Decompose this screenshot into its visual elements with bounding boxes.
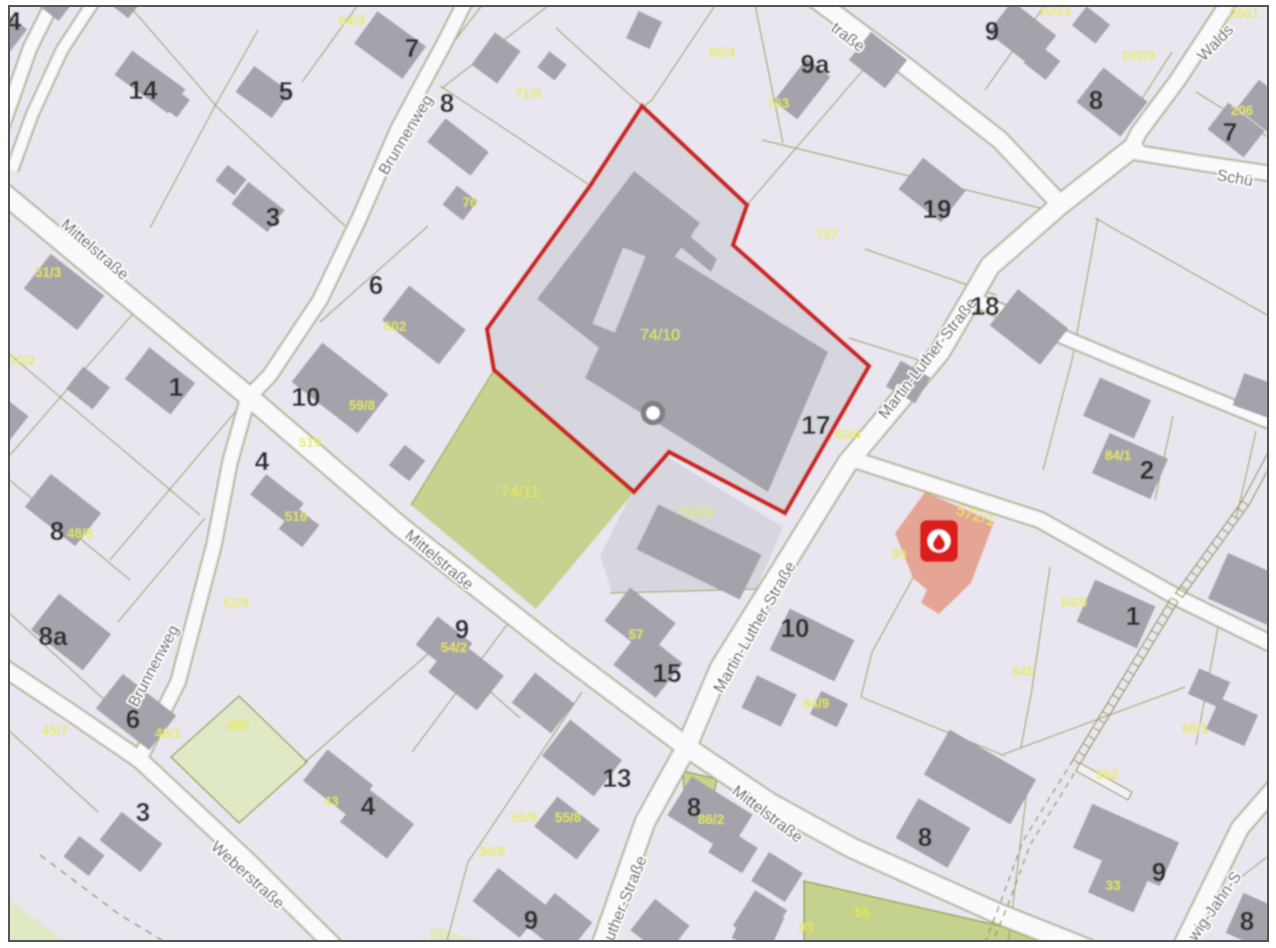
svg-text:5: 5 bbox=[279, 76, 293, 106]
svg-text:9: 9 bbox=[524, 905, 538, 935]
svg-text:3: 3 bbox=[266, 202, 280, 232]
svg-text:19: 19 bbox=[923, 194, 952, 224]
svg-text:206: 206 bbox=[1231, 103, 1254, 118]
svg-text:52/6: 52/6 bbox=[223, 595, 250, 610]
svg-text:74/11: 74/11 bbox=[501, 484, 540, 501]
svg-text:74/10: 74/10 bbox=[640, 327, 680, 344]
svg-text:552: 552 bbox=[1096, 767, 1119, 782]
svg-text:7: 7 bbox=[405, 33, 419, 63]
svg-text:9: 9 bbox=[1152, 857, 1166, 887]
svg-text:64/9: 64/9 bbox=[803, 696, 829, 711]
svg-text:4: 4 bbox=[361, 791, 376, 821]
svg-text:8: 8 bbox=[918, 822, 932, 852]
svg-text:96/4: 96/4 bbox=[709, 45, 736, 60]
svg-text:8: 8 bbox=[1089, 85, 1103, 115]
svg-text:84/9: 84/9 bbox=[1061, 595, 1087, 610]
svg-text:84/1: 84/1 bbox=[1105, 448, 1132, 463]
svg-text:757: 757 bbox=[816, 227, 839, 242]
svg-text:9: 9 bbox=[985, 16, 999, 46]
svg-text:55/8: 55/8 bbox=[555, 810, 582, 825]
svg-text:48/1: 48/1 bbox=[155, 726, 182, 741]
svg-text:71/8: 71/8 bbox=[515, 86, 542, 101]
svg-text:2: 2 bbox=[1140, 455, 1154, 485]
svg-text:2001: 2001 bbox=[1229, 6, 1260, 21]
svg-text:51/3: 51/3 bbox=[35, 265, 62, 280]
svg-text:8: 8 bbox=[440, 88, 454, 118]
svg-text:7: 7 bbox=[1223, 117, 1237, 147]
svg-text:76: 76 bbox=[462, 195, 478, 210]
svg-text:1: 1 bbox=[169, 372, 183, 402]
svg-text:18: 18 bbox=[971, 291, 1000, 321]
svg-text:59/8: 59/8 bbox=[349, 398, 376, 413]
svg-text:519: 519 bbox=[299, 435, 322, 450]
svg-text:8a: 8a bbox=[39, 621, 68, 651]
svg-text:8: 8 bbox=[1240, 906, 1254, 936]
svg-text:1: 1 bbox=[1126, 601, 1140, 631]
svg-text:9a: 9a bbox=[801, 49, 830, 79]
svg-text:48/8: 48/8 bbox=[67, 526, 94, 541]
svg-text:60/4: 60/4 bbox=[835, 427, 862, 442]
svg-text:6: 6 bbox=[126, 704, 140, 734]
svg-text:33: 33 bbox=[1105, 878, 1121, 893]
svg-text:602: 602 bbox=[384, 319, 407, 334]
svg-text:8: 8 bbox=[50, 516, 64, 546]
svg-text:36/8: 36/8 bbox=[479, 844, 506, 859]
svg-text:56: 56 bbox=[854, 905, 870, 920]
svg-text:55/6: 55/6 bbox=[511, 810, 538, 825]
svg-text:13: 13 bbox=[603, 763, 632, 793]
svg-text:54/2: 54/2 bbox=[441, 640, 467, 655]
svg-text:10: 10 bbox=[781, 613, 810, 643]
svg-text:15: 15 bbox=[653, 658, 682, 688]
svg-text:57: 57 bbox=[628, 627, 643, 642]
svg-text:86/2: 86/2 bbox=[698, 812, 724, 827]
svg-text:68/1: 68/1 bbox=[1182, 721, 1209, 736]
svg-text:17: 17 bbox=[802, 410, 831, 440]
svg-text:60/9: 60/9 bbox=[681, 504, 712, 521]
svg-text:70/2: 70/2 bbox=[9, 353, 35, 368]
svg-text:6: 6 bbox=[369, 270, 383, 300]
svg-text:45/7: 45/7 bbox=[42, 723, 68, 738]
svg-text:763: 763 bbox=[767, 96, 790, 111]
svg-text:485: 485 bbox=[227, 718, 250, 733]
svg-text:100/9: 100/9 bbox=[1121, 48, 1155, 63]
svg-text:4: 4 bbox=[255, 446, 270, 476]
svg-text:10: 10 bbox=[292, 382, 321, 412]
svg-text:43: 43 bbox=[323, 794, 339, 809]
svg-text:14: 14 bbox=[129, 75, 158, 105]
svg-text:93: 93 bbox=[798, 920, 814, 935]
svg-text:3: 3 bbox=[136, 797, 150, 827]
svg-text:90: 90 bbox=[891, 547, 906, 562]
svg-text:545: 545 bbox=[1012, 664, 1035, 679]
svg-text:64/3: 64/3 bbox=[339, 13, 366, 28]
svg-text:516: 516 bbox=[285, 509, 308, 524]
